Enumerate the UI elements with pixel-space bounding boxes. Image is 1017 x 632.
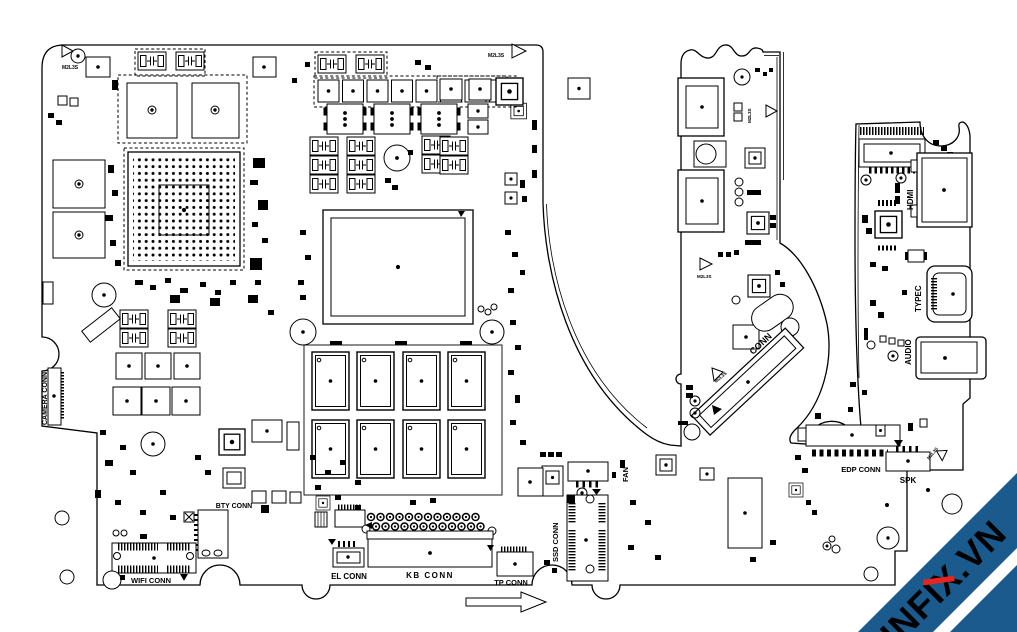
label-camera-conn: CAMERA CONN — [42, 372, 49, 425]
mounting-hole — [942, 494, 962, 514]
label-m2l3s-4: M2L3S — [697, 274, 712, 279]
camera-connector — [48, 368, 63, 425]
label-m2l3s-2: M2L3S — [488, 53, 505, 59]
hdmi-port — [911, 153, 972, 227]
usb-port — [678, 78, 724, 136]
ram-chip — [448, 352, 485, 410]
label-edp-conn: EDP CONN — [841, 465, 880, 474]
cpu-bga — [124, 148, 244, 270]
label-ssd-conn: SSD CONN — [551, 522, 560, 562]
label-hdmi: HDMI — [906, 190, 915, 210]
ram-chip — [312, 352, 349, 410]
typec-port — [927, 266, 972, 322]
usb-power-ic — [747, 212, 769, 234]
label-tp-conn: TP CONN — [494, 578, 528, 587]
label-fan: FAN — [621, 467, 630, 482]
label-bty-conn: BTY CONN — [216, 503, 252, 510]
ram-chip — [312, 420, 349, 478]
ssd-connector — [567, 495, 608, 581]
label-audio: AUDIO — [904, 339, 913, 365]
ram-chip — [403, 352, 440, 410]
thermal-pad — [568, 78, 590, 99]
ram-chip — [357, 420, 394, 478]
audio-jack — [916, 337, 986, 379]
bulk-capacitor — [192, 83, 239, 138]
usb-port — [678, 170, 724, 232]
speaker-connector — [886, 449, 930, 471]
label-el-conn: EL CONN — [331, 572, 367, 581]
bulk-capacitor — [53, 212, 105, 258]
direction-arrow — [466, 592, 546, 612]
battery-connector — [223, 468, 245, 488]
charger-ic — [219, 429, 245, 455]
bulk-capacitor — [127, 83, 177, 138]
label-spk: SPK — [900, 476, 917, 485]
mounting-hole — [103, 571, 121, 589]
label-m2l3s-1: M2L3S — [62, 65, 79, 71]
boardview-page: M2L3S M2L3S M2L3S M2L3S M2L3S M2L3S CAME… — [0, 0, 1017, 632]
label-wifi-conn: WIFI CONN — [131, 576, 171, 585]
mounting-holes-outside — [55, 511, 74, 584]
bulk-capacitor — [53, 160, 105, 208]
label-kb-conn: KB CONN — [406, 571, 454, 580]
port-controller-ic — [875, 211, 902, 238]
label-typec: TYPEC — [914, 285, 923, 312]
pcb-boardview: M2L3S M2L3S M2L3S M2L3S M2L3S M2L3S CAME… — [0, 0, 1017, 632]
ram-chip — [448, 420, 485, 478]
label-m2l3s-3: M2L3S — [747, 108, 752, 123]
ram-chip — [357, 352, 394, 410]
gpu-chip — [323, 210, 473, 324]
ram-chip — [403, 420, 440, 478]
usb-power-ic — [745, 148, 765, 168]
